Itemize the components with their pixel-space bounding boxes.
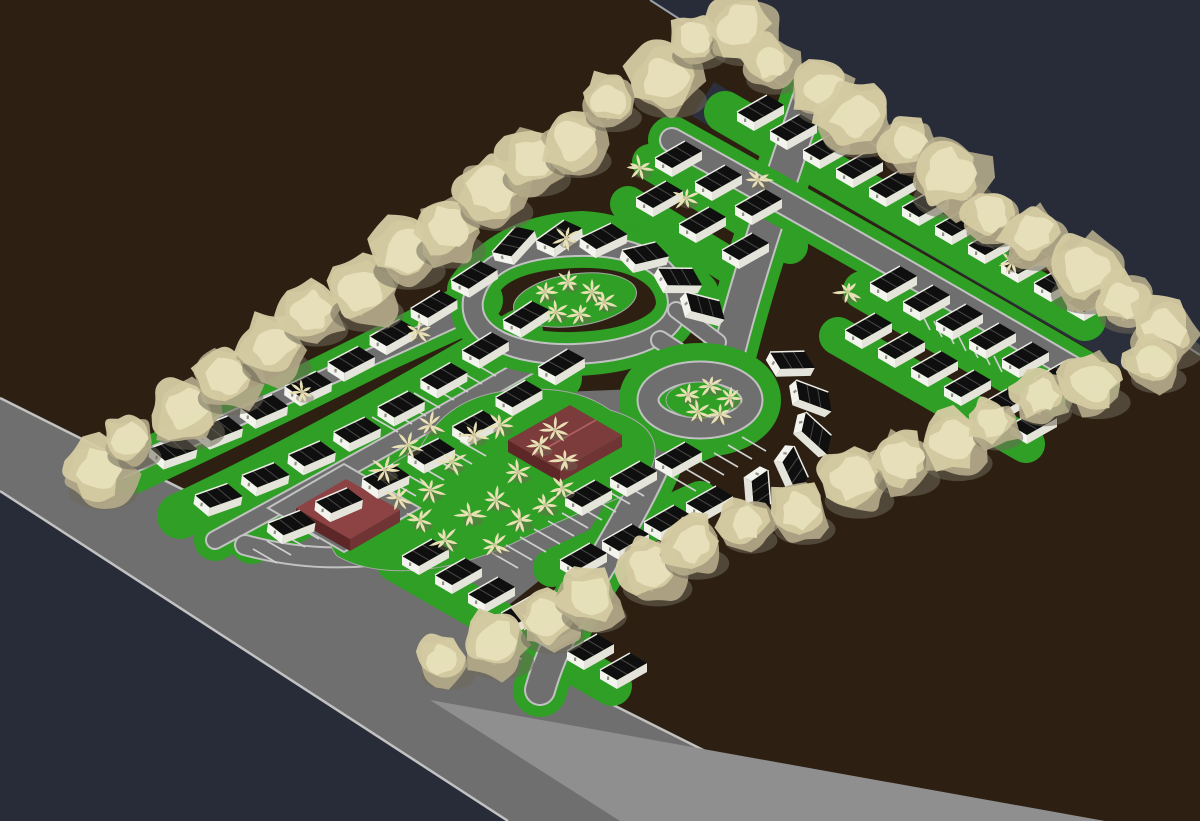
isometric-site-plan-canvas [0, 0, 1200, 821]
site-plan-render [0, 0, 1200, 821]
